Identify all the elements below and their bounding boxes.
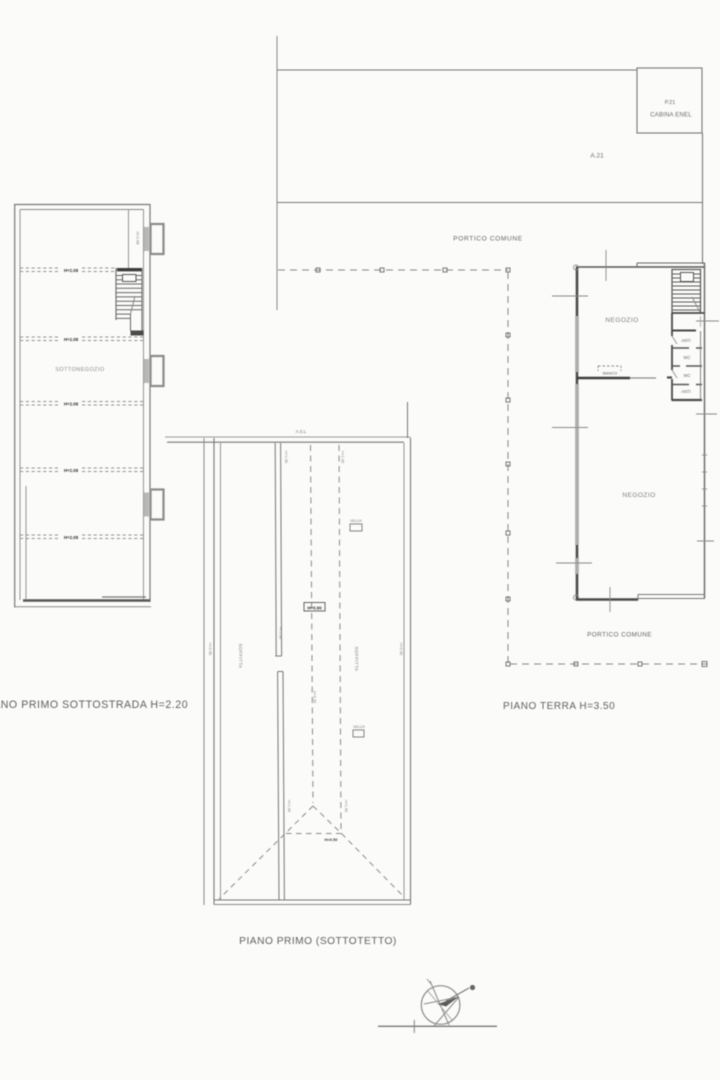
svg-text:H=2.08: H=2.08 — [64, 468, 79, 473]
svg-text:PIANO PRIMO (SOTTOTETTO): PIANO PRIMO (SOTTOTETTO) — [239, 936, 397, 947]
svg-text:H=2.50: H=2.50 — [208, 643, 212, 655]
svg-text:PORTICO COMUNE: PORTICO COMUNE — [453, 236, 522, 243]
svg-text:H=0.90: H=0.90 — [307, 606, 322, 611]
svg-text:P.21: P.21 — [665, 100, 676, 106]
svg-text:CABINA ENEL: CABINA ENEL — [650, 113, 692, 119]
svg-text:SOTTONEGOZIO: SOTTONEGOZIO — [55, 367, 104, 373]
svg-text:VELUX: VELUX — [350, 519, 362, 523]
svg-text:H=1.00: H=1.00 — [279, 627, 283, 639]
svg-text:H=1.00: H=1.00 — [344, 800, 348, 812]
svg-text:VELUX: VELUX — [353, 725, 365, 729]
svg-text:SOFFITTA: SOFFITTA — [354, 646, 359, 672]
svg-text:H=1.98: H=1.98 — [136, 231, 141, 245]
svg-text:H=1.00: H=1.00 — [287, 800, 291, 812]
svg-text:SOFFITTA: SOFFITTA — [238, 643, 243, 669]
svg-text:WC: WC — [684, 373, 691, 378]
svg-text:NEGOZIO: NEGOZIO — [622, 492, 655, 499]
svg-text:PIANO PRIMO SOTTOSTRADA H=2.20: PIANO PRIMO SOTTOSTRADA H=2.20 — [0, 699, 188, 711]
svg-text:H=2.08: H=2.08 — [64, 402, 79, 407]
svg-text:ANTI: ANTI — [681, 338, 691, 343]
svg-text:WC: WC — [684, 355, 691, 360]
svg-text:H=1.00: H=1.00 — [284, 451, 288, 463]
svg-text:H=2.20: H=2.20 — [313, 691, 317, 703]
svg-text:A.21: A.21 — [590, 153, 604, 160]
svg-text:PORTICO COMUNE: PORTICO COMUNE — [587, 632, 652, 639]
svg-text:ANTI: ANTI — [681, 389, 691, 394]
svg-text:H=1.00: H=1.00 — [341, 451, 345, 463]
svg-text:H=2.08: H=2.08 — [64, 268, 79, 273]
svg-text:H=2.50: H=2.50 — [399, 643, 403, 655]
svg-text:H=2.08: H=2.08 — [64, 337, 79, 342]
svg-text:H=2.08: H=2.08 — [64, 535, 79, 540]
svg-text:BANCO: BANCO — [603, 371, 617, 376]
svg-text:NEGOZIO: NEGOZIO — [605, 317, 638, 324]
svg-text:PIANO TERRA H=3.50: PIANO TERRA H=3.50 — [503, 701, 615, 712]
svg-text:H=0.50: H=0.50 — [324, 837, 338, 842]
svg-text:A.S.L: A.S.L — [296, 429, 307, 434]
